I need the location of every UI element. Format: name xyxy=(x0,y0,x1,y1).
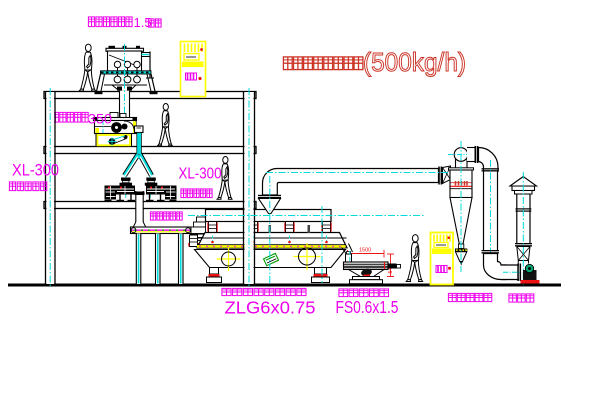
svg-text:XL-300: XL-300 xyxy=(12,161,59,180)
svg-text:1500: 1500 xyxy=(359,248,371,254)
svg-text:ZLG6x0.75: ZLG6x0.75 xyxy=(225,298,316,318)
svg-text:FS0.6x1.5: FS0.6x1.5 xyxy=(336,297,399,317)
svg-text:350: 350 xyxy=(88,111,112,127)
svg-text:XL-300: XL-300 xyxy=(179,166,222,183)
svg-text:(500kg/h): (500kg/h) xyxy=(363,47,466,77)
